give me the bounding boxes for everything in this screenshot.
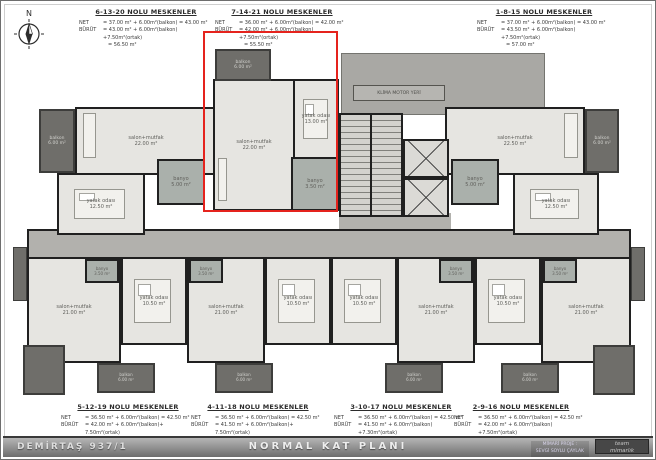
room-bedroom-unit-3-10-17: yatak odası10.50 m²	[331, 257, 397, 345]
brut-row: BÜRÜT= 43.50 m² + 6.00m²(balkon) +7.50m²…	[477, 27, 611, 42]
firm-logo: team mimarlık	[595, 439, 649, 454]
unit-spec-title: 4-11-18 NOLU MESKENLER	[191, 403, 325, 413]
staircase	[339, 113, 403, 217]
logo-line1: team	[596, 441, 648, 448]
unit-spec-title: 7-14-21 NOLU MESKENLER	[215, 8, 349, 18]
unit-spec-title: 5-12-19 NOLU MESKENLER	[61, 403, 195, 413]
room-bedroom-unit-4-11-18: yatak odası10.50 m²	[265, 257, 331, 345]
net-row: NET= 37.00 m² + 6.00m²(balkon) = 43.00 m…	[79, 20, 213, 28]
balcony-unit-5-12-19: balkon6.00 m²	[97, 363, 155, 393]
kitchen-counter-icon	[564, 113, 578, 158]
unit-spec-title: 1-8-15 NOLU MESKENLER	[477, 8, 611, 18]
room-bath-unit-6-13-20: banyo5.00 m²	[157, 159, 205, 205]
net-row: NET= 36.50 m² + 6.00m²(balkon) = 42.50 m…	[334, 415, 468, 423]
project-name: DEMİRTAŞ 937/1	[17, 442, 128, 452]
balcony-unit-2-9-16: balkon6.00 m²	[501, 363, 559, 393]
net-row: NET= 36.50 m² + 6.00m²(balkon) = 42.50 m…	[454, 415, 588, 423]
corner-terrace-right	[593, 345, 635, 395]
roof-terrace	[341, 53, 545, 115]
floor-plan-sheet: N 6-13-20 NOLU MESKENLER NET= 37.00 m² +…	[0, 0, 656, 460]
room-bath-unit-1-8-15: banyo5.00 m²	[451, 159, 499, 205]
net-row: NET= 36.50 m² + 6.00m²(balkon) = 42.50 m…	[61, 415, 195, 423]
side-balcony-right	[631, 247, 645, 301]
kitchen-counter-icon	[83, 113, 97, 158]
svg-text:N: N	[26, 9, 32, 18]
side-balcony-left	[13, 247, 27, 301]
brut-row: BÜRÜT= 41.50 m² + 6.00m²(balkon)+ 7.50m²…	[191, 422, 325, 437]
unit-spec-title: 3-10-17 NOLU MESKENLER	[334, 403, 468, 413]
unit-spec-title: 2-9-16 NOLU MESKENLER	[454, 403, 588, 413]
balcony-unit-4-11-18: balkon6.00 m²	[215, 363, 273, 393]
room-bath-unit-3-10-17: banyo3.50 m²	[439, 259, 473, 283]
room-bedroom-unit-1-8-15: yatak odası12.50 m²	[513, 173, 599, 235]
total-row: = 56.50 m²	[108, 42, 213, 50]
credit-name: SEVGİ SOYLU ÇAYLAK	[536, 449, 584, 456]
room-bedroom-unit-6-13-20: yatak odası12.50 m²	[57, 173, 145, 235]
brut-row: BÜRÜT= 42.00 m² + 6.00m²(balkon) +7.50m²…	[454, 422, 588, 437]
brut-row: BÜRÜT= 41.50 m² + 6.00m²(balkon) +7.30m²…	[334, 422, 468, 437]
unit-spec-title: 6-13-20 NOLU MESKENLER	[79, 8, 213, 18]
architect-credit: MİMARİ PROJE : SEVGİ SOYLU ÇAYLAK	[531, 441, 589, 457]
title-bar: DEMİRTAŞ 937/1 NORMAL KAT PLANI MİMARİ P…	[3, 436, 653, 457]
net-row: NET= 37.00 m² + 6.00m²(balkon) = 43.00 m…	[477, 20, 611, 28]
elevator-shaft-icon	[403, 178, 449, 217]
unit-spec-1-8-15: 1-8-15 NOLU MESKENLER NET= 37.00 m² + 6.…	[477, 8, 611, 50]
room-bath-unit-5-12-19: banyo3.50 m²	[85, 259, 119, 283]
brut-row: BÜRÜT= 43.00 m² + 6.00m²(balkon) +7.50m²…	[79, 27, 213, 42]
balcony-unit-6-13-20: balkon6.00 m²	[39, 109, 75, 173]
selected-unit-highlight	[203, 31, 338, 212]
balcony-unit-1-8-15: balkon6.00 m²	[585, 109, 619, 173]
balcony-unit-3-10-17: balkon6.00 m²	[385, 363, 443, 393]
room-bath-unit-2-9-16: banyo3.50 m²	[543, 259, 577, 283]
logo-line2: mimarlık	[596, 448, 648, 455]
net-row: NET= 36.50 m² + 6.00m²(balkon) = 42.50 m…	[191, 415, 325, 423]
compass-icon: N	[11, 7, 47, 53]
total-row: = 57.00 m²	[506, 42, 611, 50]
corner-terrace-left	[23, 345, 65, 395]
room-bedroom-unit-2-9-16: yatak odası10.50 m²	[475, 257, 541, 345]
room-bedroom-unit-5-12-19: yatak odası10.50 m²	[121, 257, 187, 345]
plan-title: NORMAL KAT PLANI	[249, 441, 408, 452]
credit-label: MİMARİ PROJE :	[536, 442, 584, 449]
room-bath-unit-4-11-18: banyo3.50 m²	[189, 259, 223, 283]
elevator-shaft-icon	[403, 139, 449, 178]
brut-row: BÜRÜT= 42.00 m² + 6.00m²(balkon)+ 7.50m²…	[61, 422, 195, 437]
net-row: NET= 36.00 m² + 6.00m²(balkon) = 42.00 m…	[215, 20, 349, 28]
unit-spec-6-13-20: 6-13-20 NOLU MESKENLER NET= 37.00 m² + 6…	[79, 8, 213, 50]
ac-motor-area-label: KLİMA MOTOR YERİ	[353, 85, 445, 101]
